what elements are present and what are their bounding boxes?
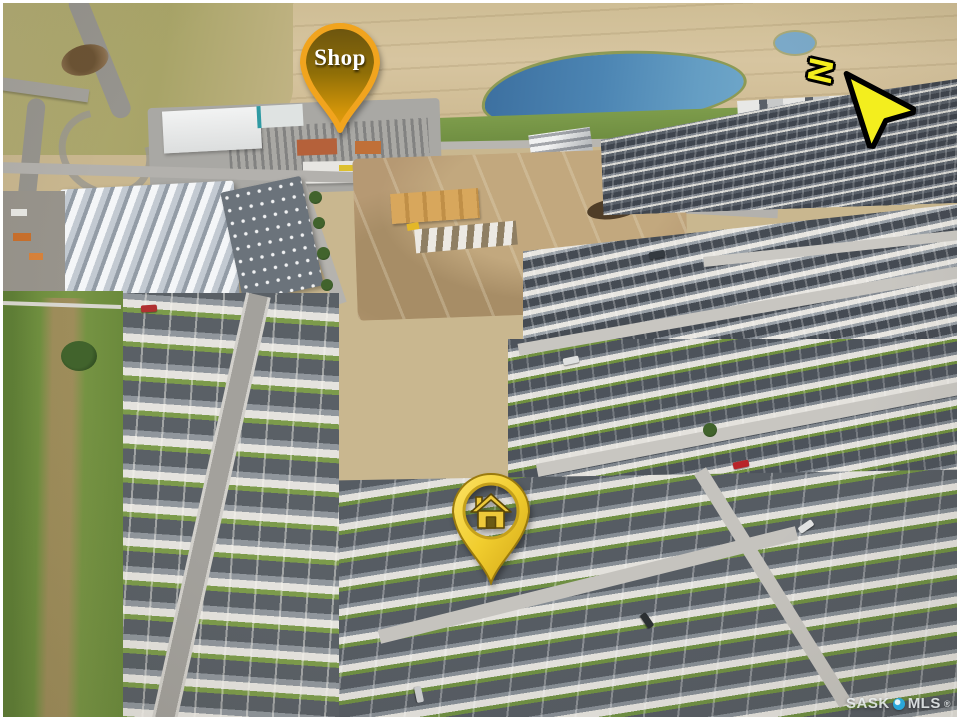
house-icon bbox=[471, 494, 511, 528]
north-indicator: N bbox=[799, 47, 929, 155]
shop-map-pin-icon bbox=[294, 13, 386, 133]
region-residential-south bbox=[326, 469, 957, 717]
tree bbox=[61, 341, 97, 371]
bigbox-store bbox=[162, 106, 262, 153]
north-arrow-icon bbox=[806, 38, 936, 168]
restaurant-building bbox=[355, 141, 381, 154]
car bbox=[141, 304, 157, 312]
aerial-photo: Shop N bbox=[3, 3, 957, 717]
registered-mark: ® bbox=[944, 699, 951, 709]
shipping-container bbox=[13, 233, 31, 241]
region-residential-west bbox=[119, 293, 339, 717]
mls-dot-icon bbox=[893, 698, 905, 710]
house-framing bbox=[390, 188, 480, 224]
tree bbox=[313, 217, 325, 229]
tree bbox=[321, 279, 333, 291]
restaurant-building bbox=[297, 138, 338, 155]
tree bbox=[309, 191, 322, 204]
shop-pin-label: Shop bbox=[294, 45, 386, 71]
watermark: SASK MLS ® bbox=[846, 695, 951, 712]
watermark-text-right: MLS bbox=[908, 695, 941, 712]
watermark-text-left: SASK bbox=[846, 695, 890, 712]
shipping-container bbox=[29, 253, 43, 260]
tree bbox=[317, 247, 330, 260]
photo-frame: Shop N bbox=[0, 0, 960, 720]
shipping-container bbox=[11, 209, 27, 216]
tree bbox=[703, 423, 717, 437]
home-location-pin-icon bbox=[445, 460, 537, 586]
